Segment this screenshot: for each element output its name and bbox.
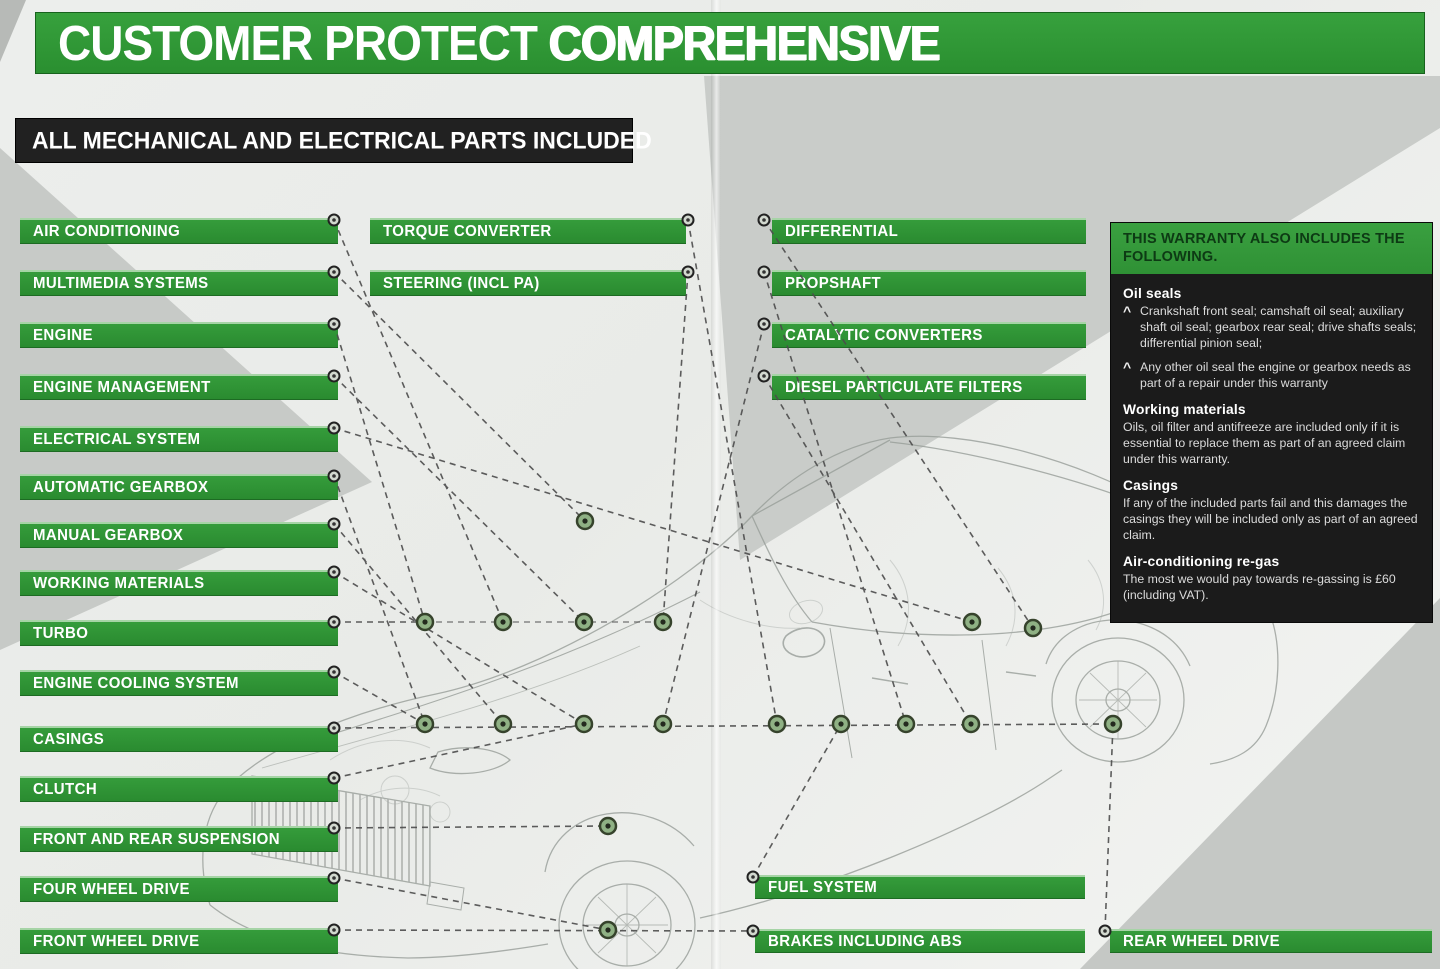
- part-label-rear-wheel-drive: REAR WHEEL DRIVE: [1110, 929, 1432, 953]
- part-label-clutch: CLUTCH: [20, 776, 338, 802]
- part-label-air-conditioning: AIR CONDITIONING: [20, 218, 338, 244]
- part-label-casings: CASINGS: [20, 726, 338, 752]
- part-label-engine-cooling-system: ENGINE COOLING SYSTEM: [20, 670, 338, 696]
- chevron-bullet-icon: ^: [1123, 304, 1140, 352]
- title-bar: CUSTOMER PROTECT COMPREHENSIVE: [35, 12, 1425, 74]
- part-label-diesel-particulate-filters: DIESEL PARTICULATE FILTERS: [772, 374, 1086, 400]
- part-label-brakes-including-abs: BRAKES INCLUDING ABS: [755, 929, 1085, 953]
- part-label-propshaft: PROPSHAFT: [772, 270, 1086, 296]
- part-label-catalytic-converters: CATALYTIC CONVERTERS: [772, 322, 1086, 348]
- part-label-engine: ENGINE: [20, 322, 338, 348]
- front-wheel: [559, 861, 695, 969]
- part-label-electrical-system: ELECTRICAL SYSTEM: [20, 426, 338, 452]
- part-label-differential: DIFFERENTIAL: [772, 218, 1086, 244]
- section-heading-working-materials: Working materials: [1123, 402, 1420, 417]
- part-label-automatic-gearbox: AUTOMATIC GEARBOX: [20, 474, 338, 500]
- working-materials-text: Oils, oil filter and antifreeze are incl…: [1123, 420, 1420, 468]
- part-label-fuel-system: FUEL SYSTEM: [755, 875, 1085, 899]
- warranty-info-panel: THIS WARRANTY ALSO INCLUDES THE FOLLOWIN…: [1110, 222, 1433, 623]
- part-label-turbo: TURBO: [20, 620, 338, 646]
- part-label-steering-incl-pa: STEERING (INCL PA): [370, 270, 686, 296]
- warranty-panel-title: THIS WARRANTY ALSO INCLUDES THE FOLLOWIN…: [1111, 223, 1432, 274]
- part-label-manual-gearbox: MANUAL GEARBOX: [20, 522, 338, 548]
- page-title: CUSTOMER PROTECT COMPREHENSIVE: [58, 14, 940, 71]
- part-label-front-and-rear-suspension: FRONT AND REAR SUSPENSION: [20, 826, 338, 852]
- part-label-working-materials: WORKING MATERIALS: [20, 570, 338, 596]
- part-label-four-wheel-drive: FOUR WHEEL DRIVE: [20, 876, 338, 902]
- chevron-bullet-icon: ^: [1123, 360, 1140, 392]
- subtitle-bar: ALL MECHANICAL AND ELECTRICAL PARTS INCL…: [15, 118, 633, 163]
- section-heading-casings: Casings: [1123, 478, 1420, 493]
- part-label-front-wheel-drive: FRONT WHEEL DRIVE: [20, 928, 338, 954]
- subtitle-text: ALL MECHANICAL AND ELECTRICAL PARTS INCL…: [32, 126, 652, 154]
- part-label-engine-management: ENGINE MANAGEMENT: [20, 374, 338, 400]
- oil-seals-bullet-1: ^ Crankshaft front seal; camshaft oil se…: [1123, 304, 1420, 352]
- section-heading-oil-seals: Oil seals: [1123, 286, 1420, 301]
- rear-wheel: [1052, 638, 1184, 762]
- oil-seals-bullet-2: ^ Any other oil seal the engine or gearb…: [1123, 360, 1420, 392]
- part-label-multimedia-systems: MULTIMEDIA SYSTEMS: [20, 270, 338, 296]
- part-label-torque-converter: TORQUE CONVERTER: [370, 218, 686, 244]
- aircon-regas-text: The most we would pay towards re-gassing…: [1123, 572, 1420, 604]
- page-fold-crease: [711, 0, 721, 969]
- casings-text: If any of the included parts fail and th…: [1123, 496, 1420, 544]
- section-heading-aircon-regas: Air-conditioning re-gas: [1123, 554, 1420, 569]
- leaflet-page: CUSTOMER PROTECT COMPREHENSIVE ALL MECHA…: [0, 0, 1440, 969]
